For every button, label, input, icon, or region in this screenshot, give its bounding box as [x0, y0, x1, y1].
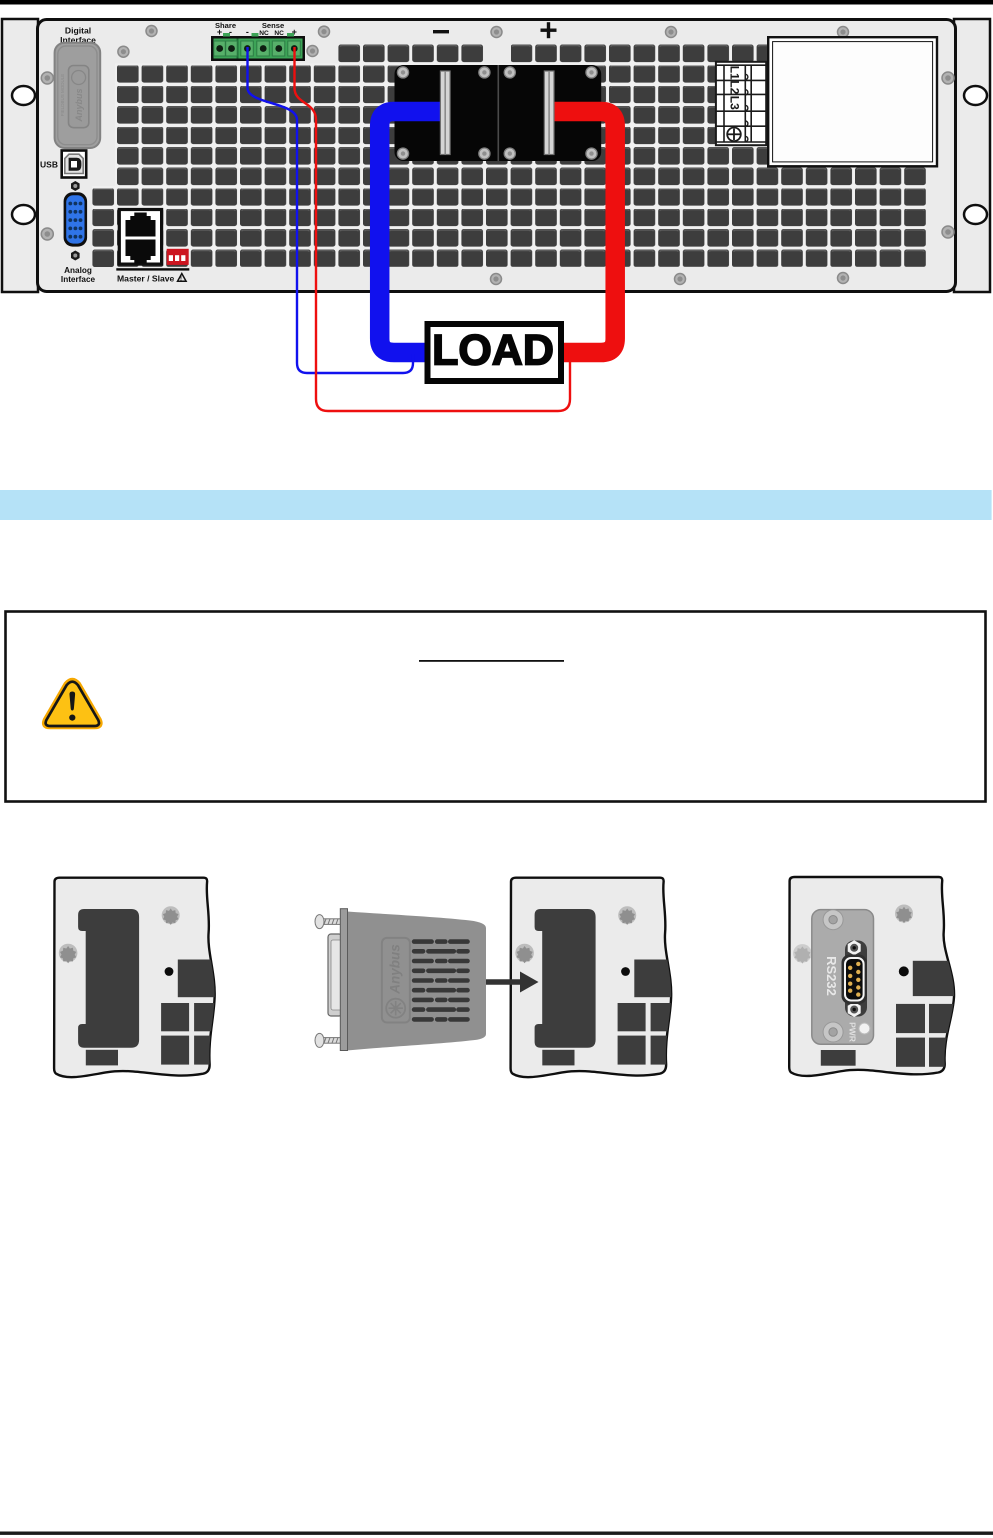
svg-text:PWR: PWR [848, 1022, 858, 1042]
svg-text:NC: NC [259, 30, 269, 37]
svg-text:Master / Slave: Master / Slave [117, 274, 175, 284]
svg-text:RS232: RS232 [824, 956, 839, 996]
svg-text:Anybus: Anybus [74, 88, 84, 122]
svg-text:Digital: Digital [65, 26, 91, 36]
svg-text:Sense: Sense [262, 21, 284, 30]
svg-text:+: + [217, 27, 222, 37]
svg-text:LOAD: LOAD [432, 327, 554, 375]
svg-text:Anybus: Anybus [388, 944, 403, 995]
svg-text:!: ! [180, 277, 182, 283]
svg-text:NC: NC [274, 30, 284, 37]
svg-text:FIELDBUS MODULE: FIELDBUS MODULE [60, 74, 65, 117]
svg-text:Interface: Interface [61, 275, 96, 284]
svg-text:L3: L3 [728, 96, 742, 110]
svg-text:Analog: Analog [64, 266, 92, 275]
svg-text:-: - [246, 27, 249, 37]
svg-text:L2: L2 [728, 80, 742, 94]
svg-text:USB: USB [40, 160, 58, 170]
svg-text:L1: L1 [728, 66, 742, 80]
